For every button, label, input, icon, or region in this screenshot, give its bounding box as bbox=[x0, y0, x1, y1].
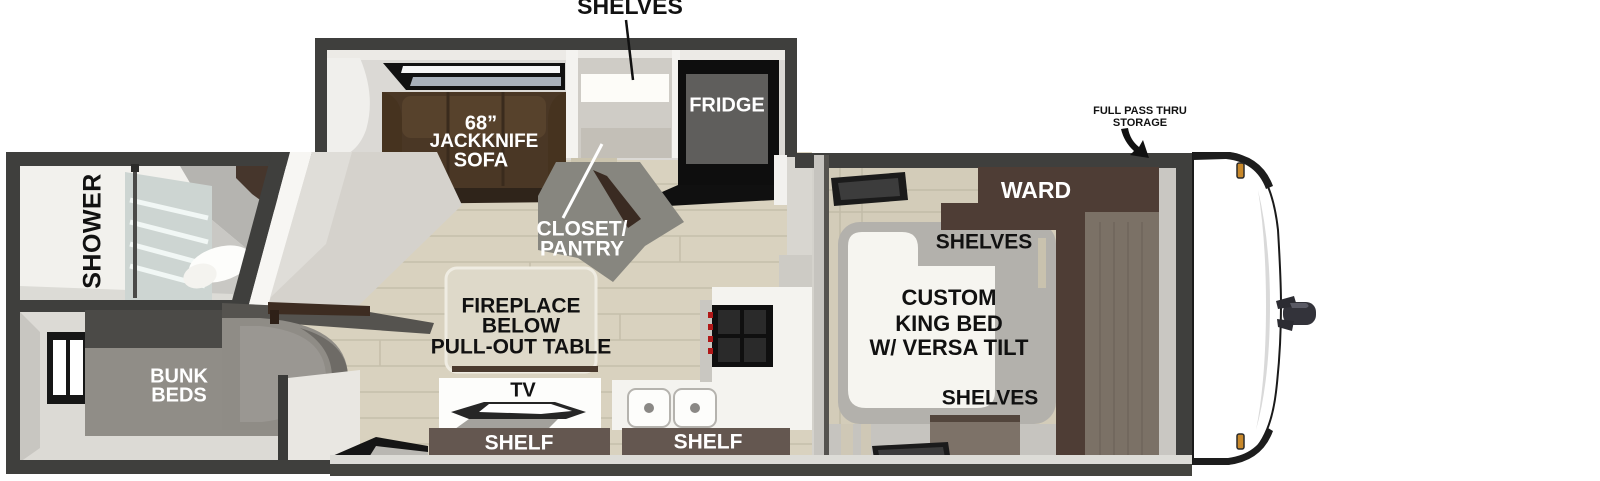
svg-text:SHOWER: SHOWER bbox=[79, 173, 107, 289]
svg-text:FRIDGE: FRIDGE bbox=[689, 94, 765, 116]
svg-text:FULL PASS THRU: FULL PASS THRU bbox=[1093, 105, 1187, 117]
svg-text:WARD: WARD bbox=[1001, 177, 1071, 203]
svg-text:PULL-OUT TABLE: PULL-OUT TABLE bbox=[431, 336, 611, 359]
svg-text:SHELVES: SHELVES bbox=[942, 387, 1038, 410]
svg-text:SHELF: SHELF bbox=[674, 431, 743, 454]
svg-text:CUSTOM: CUSTOM bbox=[902, 285, 997, 310]
svg-text:SHELF: SHELF bbox=[485, 432, 554, 455]
svg-text:PANTRY: PANTRY bbox=[540, 238, 624, 261]
svg-text:W/ VERSA TILT: W/ VERSA TILT bbox=[870, 335, 1029, 360]
svg-text:SOFA: SOFA bbox=[454, 149, 508, 171]
svg-text:SHELVES: SHELVES bbox=[936, 231, 1032, 254]
svg-text:BEDS: BEDS bbox=[151, 384, 207, 406]
svg-text:BELOW: BELOW bbox=[482, 315, 560, 338]
svg-text:SHELVES: SHELVES bbox=[577, 0, 683, 19]
svg-text:KING BED: KING BED bbox=[895, 311, 1003, 336]
svg-text:STORAGE: STORAGE bbox=[1113, 117, 1167, 129]
svg-text:TV: TV bbox=[510, 379, 536, 401]
